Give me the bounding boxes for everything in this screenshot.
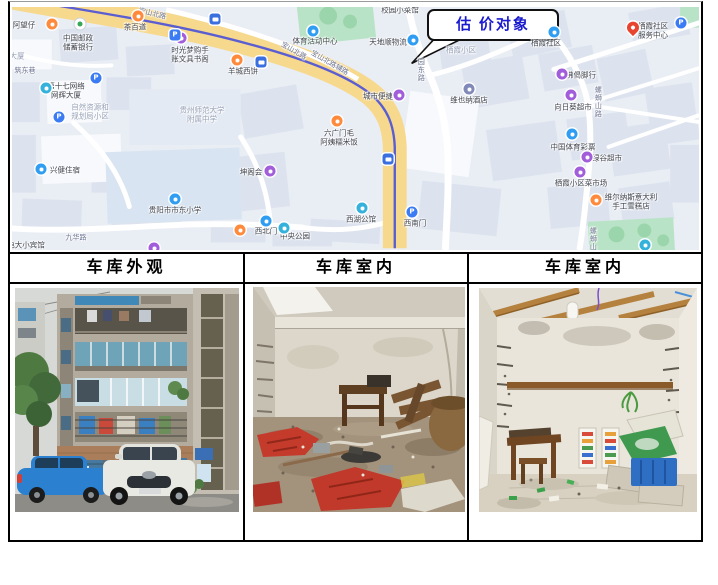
map-label: 佛偈脚行 [566, 70, 596, 79]
purple-poi-icon [566, 90, 577, 101]
leaf-poi-icon [75, 19, 86, 30]
purple-poi-icon [394, 90, 405, 101]
icon-dot [560, 72, 564, 76]
icon-dot [212, 17, 218, 21]
map-label: 时光梦购手 账文具书阁 [171, 46, 209, 65]
icon-dot [258, 60, 264, 64]
map-label: 西湖公馆 [346, 214, 376, 223]
garage-exterior-photo [15, 288, 239, 512]
table-divider [243, 252, 245, 540]
icon-dot [585, 155, 589, 159]
map-label: 兴健住宿 [50, 165, 80, 174]
parking-glyph: P [56, 114, 61, 121]
icon-dot [570, 132, 574, 136]
teal-poi-icon [357, 203, 368, 214]
blue-poi-icon [567, 129, 578, 140]
location-map: 估 价对象 阿望仔中国邮政 储蓄银行茶百道时光梦购手 账文具书阁羊城西饼体育活动… [12, 7, 699, 250]
map-label: 九华路 [66, 235, 87, 244]
bus-poi-icon [256, 57, 267, 68]
purple-poi-icon [582, 152, 593, 163]
icon-dot [630, 25, 636, 31]
header-label: 车库室内 [545, 260, 625, 276]
orange-poi-icon [133, 11, 144, 22]
orange-poi-icon [332, 116, 343, 127]
blue-poi-icon [308, 26, 319, 37]
map-label: 天地顺物流 [369, 37, 407, 46]
map-label: 校园小菜馆 [381, 7, 419, 15]
parking-glyph: P [678, 20, 683, 27]
p-poi-icon: P [91, 73, 102, 84]
map-label: 大厦 [12, 51, 25, 60]
parking-glyph: P [172, 32, 177, 39]
map-label: 宝山北路 [279, 41, 308, 63]
callout-bubble: 估 价对象 [427, 9, 559, 41]
map-label: 西北门 [255, 226, 278, 235]
map-label: 羊城西饼 [228, 66, 258, 75]
table-divider [10, 282, 701, 284]
map-label: 维也纳酒店 [450, 95, 488, 104]
callout-tail [12, 7, 699, 250]
p-poi-icon: P [54, 112, 65, 123]
map-label: 中国邮政 储蓄银行 [63, 34, 93, 53]
icon-dot [238, 228, 242, 232]
garage-interior-photo-2 [479, 288, 697, 512]
blue-poi-icon [170, 194, 181, 205]
map-label: 园东路 [416, 58, 425, 82]
orange-poi-icon [591, 195, 602, 206]
purple-poi-icon [149, 243, 160, 251]
map-label: 体育活动中心 [293, 36, 338, 45]
purple-poi-icon [575, 167, 586, 178]
map-label: 螺蛳山 [588, 227, 597, 250]
icon-dot [78, 22, 83, 27]
bus-poi-icon [383, 154, 394, 165]
callout-label: 估 价对象 [456, 18, 530, 33]
orange-poi-icon [47, 19, 58, 30]
map-label: 绿谷超市 [592, 153, 622, 162]
icon-dot [594, 198, 598, 202]
column-header-garage-interior-2: 车库室内 [469, 254, 701, 281]
map-label: 阿望仔 [13, 20, 36, 29]
icon-dot [385, 157, 391, 161]
header-label: 车库室内 [316, 260, 396, 276]
map-label: 六广门毛 阿姨糯米饭 [320, 129, 358, 148]
column-header-garage-exterior: 车库外观 [10, 254, 243, 281]
column-header-garage-interior-1: 车库室内 [245, 254, 467, 281]
red-poi-icon [625, 19, 642, 36]
purple-poi-icon [557, 69, 568, 80]
icon-dot [282, 226, 286, 230]
icon-dot [397, 93, 401, 97]
icon-dot [411, 38, 415, 42]
report-page: 估 价对象 阿望仔中国邮政 储蓄银行茶百道时光梦购手 账文具书阁羊城西饼体育活动… [0, 0, 718, 585]
icon-dot [152, 246, 156, 250]
icon-dot [360, 206, 364, 210]
garage-interior-photo-1 [253, 287, 465, 512]
map-label: 自然资源和 规划局小区 [71, 103, 109, 122]
icon-dot [643, 243, 647, 247]
psq-poi-icon: P [170, 30, 181, 41]
teal-poi-icon [41, 83, 52, 94]
orange-poi-icon [232, 55, 243, 66]
blue-poi-icon [261, 216, 272, 227]
teal-poi-icon [279, 223, 290, 234]
icon-dot [50, 22, 54, 26]
p-poi-icon: P [407, 207, 418, 218]
map-label: 维尔纳斯意大利 手工雪糕店 [605, 193, 658, 212]
icon-dot [173, 197, 177, 201]
icon-dot [335, 119, 339, 123]
purple-poi-icon [265, 166, 276, 177]
map-label: 栖霞小区 [446, 45, 476, 54]
blue-poi-icon [549, 27, 560, 38]
map-label: 筑东巷 [15, 68, 36, 77]
orange-poi-icon [235, 225, 246, 236]
map-label: 城市便捷 [363, 91, 393, 100]
blue-poi-icon [408, 35, 419, 46]
icon-dot [467, 87, 471, 91]
parking-glyph: P [409, 209, 414, 216]
icon-dot [569, 93, 573, 97]
icon-dot [268, 169, 272, 173]
table-divider [467, 252, 469, 540]
icon-dot [44, 86, 48, 90]
hotel-poi-icon [464, 84, 475, 95]
map-label: 西南门 [404, 218, 427, 227]
icon-dot [578, 170, 582, 174]
icon-dot [264, 219, 268, 223]
header-label: 车库外观 [86, 260, 166, 276]
icon-dot [552, 30, 556, 34]
map-overlay: 估 价对象 阿望仔中国邮政 储蓄银行茶百道时光梦购手 账文具书阁羊城西饼体育活动… [12, 7, 699, 250]
map-label: 电大小宾馆 [12, 240, 45, 249]
teal-poi-icon [640, 240, 651, 251]
icon-dot [311, 29, 315, 33]
map-label: 贵阳市市东小学 [149, 205, 202, 214]
map-label: 栖霞社区 服务中心 [638, 22, 668, 41]
map-label: 栖霞小区菜市场 [555, 178, 608, 187]
icon-dot [235, 58, 239, 62]
map-label: 贵州师范大学 附属中学 [180, 106, 225, 125]
blue-poi-icon [36, 164, 47, 175]
map-label: 向日葵超市 [554, 102, 592, 111]
map-label: 茶百道 [124, 22, 147, 31]
map-label: 第十七网络 网辉大厦 [47, 82, 85, 101]
parking-glyph: P [93, 75, 98, 82]
map-label: 中国体育彩票 [551, 142, 596, 151]
map-label: 螺蛳山路 [593, 86, 602, 118]
icon-dot [39, 167, 43, 171]
map-label: 坤阁会 [240, 167, 263, 176]
map-label: 宝山北路辅路 [309, 50, 350, 79]
icon-dot [136, 14, 140, 18]
p-poi-icon: P [676, 18, 687, 29]
bus-poi-icon [210, 14, 221, 25]
